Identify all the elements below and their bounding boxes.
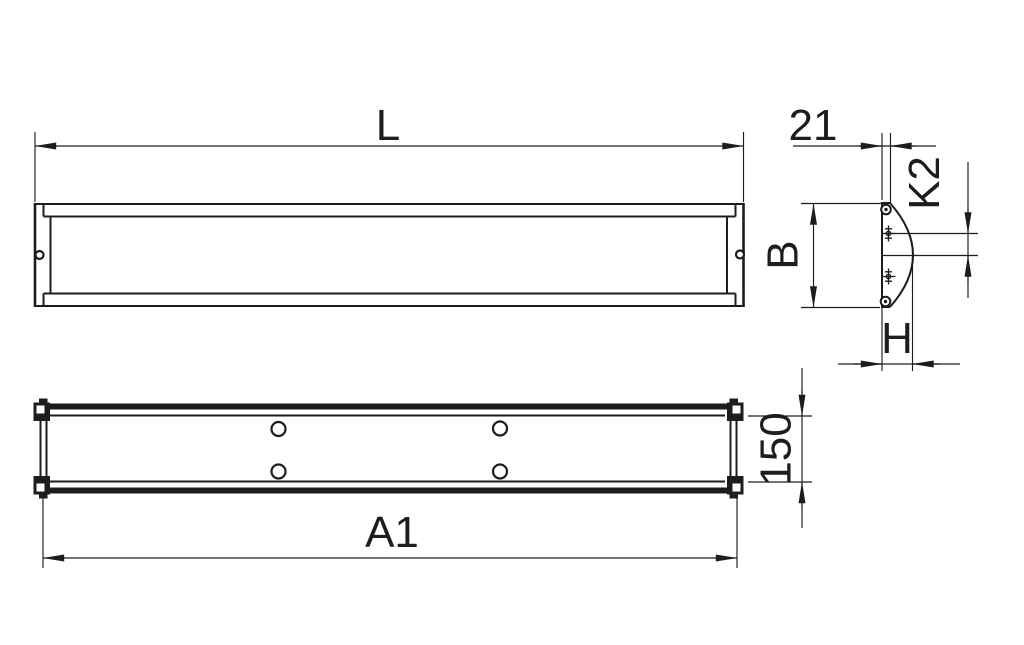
dim-H-label: H [881, 314, 913, 363]
dim-L-label: L [376, 101, 400, 150]
plan-right-endcap [727, 399, 744, 499]
dim-21-label: 21 [789, 101, 838, 150]
latch-clip-icon [727, 476, 744, 499]
plan-bottom-rail [47, 488, 728, 494]
screw-head-icon [881, 205, 891, 215]
screw-head-icon [881, 297, 891, 307]
plan-left-endcap [34, 399, 51, 499]
crosshair-mark-icon [882, 269, 896, 285]
dimension-L: L [35, 101, 744, 202]
dimension-A1: A1 [43, 498, 737, 568]
dimension-B: B [759, 204, 882, 308]
dimension-150: 150 [748, 368, 812, 528]
plan-mounting-holes [272, 422, 508, 479]
dim-K2-label: K2 [900, 156, 949, 210]
dimension-K2: K2 [882, 156, 978, 298]
front-elevation-view [34, 203, 745, 307]
latch-clip-icon [34, 476, 51, 499]
dim-B-label: B [759, 240, 808, 269]
front-endcap-steps [44, 204, 736, 306]
dim-150-label: 150 [752, 412, 801, 485]
plan-top-rail [47, 404, 728, 410]
front-right-hole [736, 251, 744, 259]
dim-A1-label: A1 [365, 508, 419, 557]
dimension-H: H [838, 257, 960, 371]
technical-drawing-canvas: L 21 [0, 0, 1024, 645]
front-left-hole [36, 251, 44, 259]
bottom-plan-view [34, 399, 744, 499]
latch-clip-icon [34, 399, 51, 422]
latch-clip-icon [727, 399, 744, 422]
drawing-svg: L 21 [0, 0, 1024, 645]
